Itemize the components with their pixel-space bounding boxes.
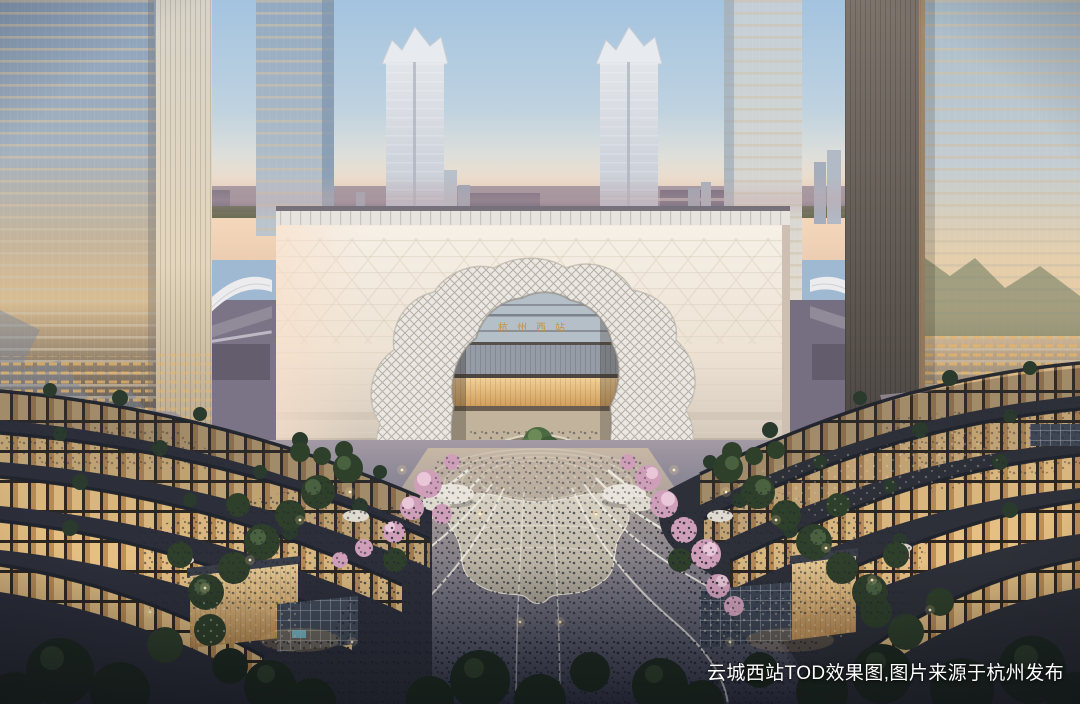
architectural-rendering: 杭州西站 xyxy=(0,0,1080,704)
caption-text: 云城西站TOD效果图,图片来源于杭州发布 xyxy=(707,658,1064,685)
vignette xyxy=(0,0,1080,704)
rendering-scene: 杭州西站 xyxy=(0,0,1080,704)
